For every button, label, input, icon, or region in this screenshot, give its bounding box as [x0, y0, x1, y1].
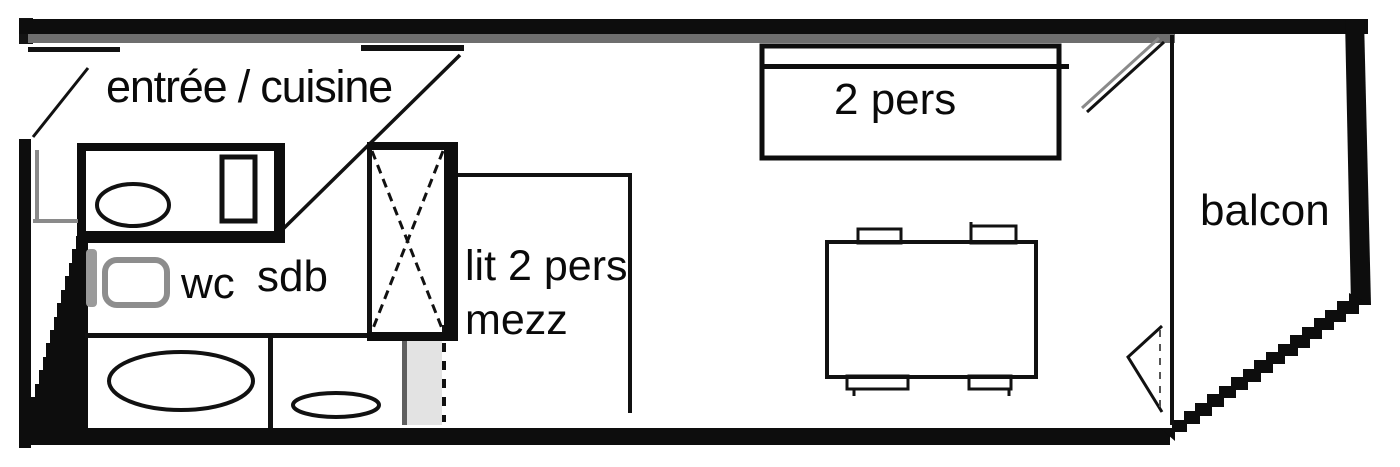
- svg-text:2 pers: 2 pers: [834, 75, 956, 124]
- svg-text:mezz: mezz: [465, 296, 568, 344]
- svg-text:lit 2 pers: lit 2 pers: [465, 242, 628, 290]
- svg-text:entrée / cuisine: entrée / cuisine: [106, 61, 392, 112]
- svg-text:wc: wc: [180, 259, 235, 308]
- svg-text:sdb: sdb: [257, 252, 328, 301]
- svg-text:balcon: balcon: [1200, 186, 1330, 235]
